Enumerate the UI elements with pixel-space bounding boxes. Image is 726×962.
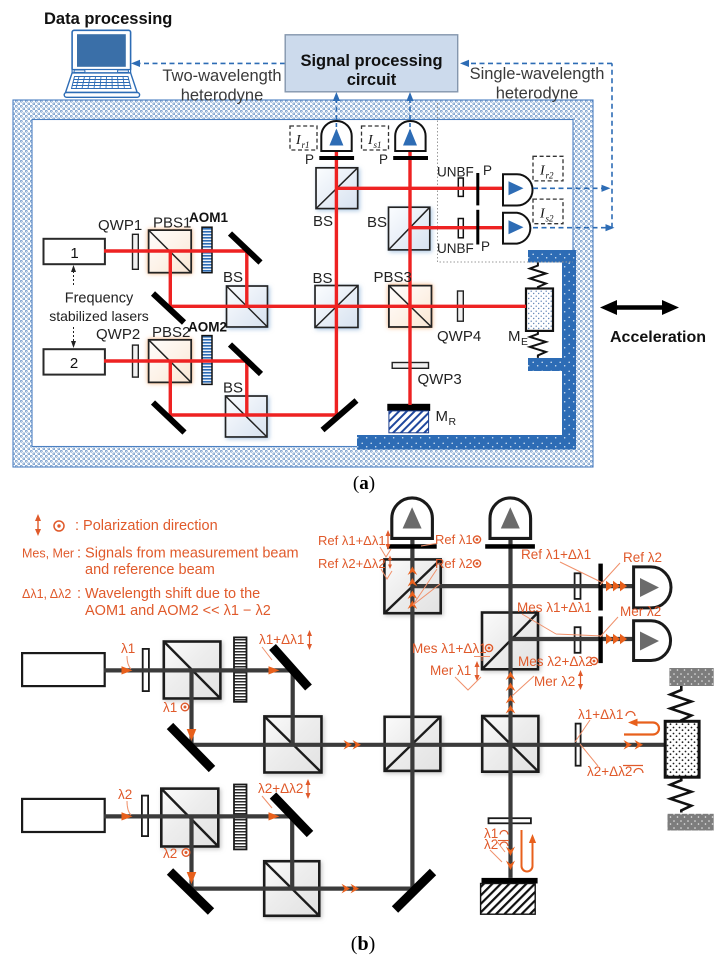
svg-text:λ1+Δλ1: λ1+Δλ1 (259, 632, 304, 647)
svg-text:Single-wavelength: Single-wavelength (470, 65, 605, 83)
svg-text:Mes λ1+Δλ1: Mes λ1+Δλ1 (517, 600, 592, 615)
svg-text:(a): (a) (353, 473, 375, 494)
svg-text:and reference beam: and reference beam (85, 562, 215, 578)
svg-text:PBS1: PBS1 (153, 215, 191, 232)
svg-text:λ2: λ2 (118, 787, 132, 802)
svg-text:Two-wavelength: Two-wavelength (162, 67, 281, 85)
svg-text:QWP2: QWP2 (96, 326, 140, 343)
svg-text:AOM1: AOM1 (189, 210, 228, 225)
svg-text:Ref λ2: Ref λ2 (435, 556, 473, 571)
svg-text:BS: BS (313, 270, 333, 287)
svg-text:: Signals from measurement bea: : Signals from measurement beam (77, 546, 299, 562)
svg-text:Ref λ1+Δλ1: Ref λ1+Δλ1 (521, 547, 591, 562)
svg-text:E: E (521, 336, 528, 348)
svg-text:λ2: λ2 (163, 846, 177, 861)
svg-text:λ1+Δλ1: λ1+Δλ1 (578, 707, 623, 722)
svg-text:circuit: circuit (347, 71, 397, 89)
svg-text:heterodyne: heterodyne (496, 85, 579, 103)
svg-text:λ2+Δλ2: λ2+Δλ2 (258, 781, 303, 796)
svg-text:Mer λ2: Mer λ2 (620, 604, 661, 619)
svg-text:1: 1 (70, 245, 78, 262)
svg-text:PBS3: PBS3 (374, 269, 412, 286)
svg-text:Frequency: Frequency (65, 291, 134, 307)
svg-text:Acceleration: Acceleration (610, 329, 706, 346)
svg-text:PBS2: PBS2 (152, 324, 190, 341)
svg-text:M: M (436, 408, 449, 425)
svg-text:P: P (305, 152, 314, 167)
svg-text:AOM2: AOM2 (188, 320, 227, 335)
svg-text:R: R (449, 416, 457, 428)
svg-text:: Wavelength shift due to the: : Wavelength shift due to the (77, 586, 260, 602)
svg-text:(b): (b) (351, 933, 375, 955)
svg-text:QWP4: QWP4 (437, 328, 481, 345)
svg-text:λ2: λ2 (484, 837, 498, 852)
svg-text:Mer λ2: Mer λ2 (534, 674, 575, 689)
svg-text:λ1: λ1 (121, 641, 135, 656)
svg-text:Ref λ1: Ref λ1 (435, 532, 473, 547)
svg-text:Mes, Mer: Mes, Mer (22, 547, 74, 561)
svg-text:BS: BS (313, 213, 333, 230)
svg-text:Δλ1, Δλ2: Δλ1, Δλ2 (22, 587, 71, 601)
svg-text:Mer λ1: Mer λ1 (430, 663, 471, 678)
svg-text:Data processing: Data processing (44, 10, 172, 28)
svg-text:M: M (508, 328, 521, 345)
svg-text:r2: r2 (546, 171, 555, 181)
svg-text:heterodyne: heterodyne (181, 87, 264, 105)
svg-text:QWP1: QWP1 (98, 217, 142, 234)
svg-text:s2: s2 (546, 213, 555, 223)
svg-text:s1: s1 (374, 140, 382, 150)
svg-text:r1: r1 (302, 140, 310, 150)
svg-text:BS: BS (367, 214, 387, 231)
svg-text:2: 2 (70, 355, 78, 372)
svg-text:UNBF: UNBF (437, 165, 474, 180)
svg-text:: Polarization direction: : Polarization direction (75, 518, 218, 534)
svg-text:P: P (379, 152, 388, 167)
svg-text:BS: BS (223, 269, 243, 286)
svg-text:P: P (483, 163, 492, 178)
svg-text:λ2+Δλ2: λ2+Δλ2 (587, 764, 632, 779)
svg-text:UNBF: UNBF (437, 241, 474, 256)
svg-text:stabilized lasers: stabilized lasers (49, 308, 149, 324)
svg-text:Ref λ1+Δλ1: Ref λ1+Δλ1 (318, 533, 386, 548)
svg-text:Mes λ1+Δλ1: Mes λ1+Δλ1 (412, 641, 487, 656)
svg-text:QWP3: QWP3 (418, 371, 462, 388)
svg-text:Ref λ2+Δλ2: Ref λ2+Δλ2 (318, 556, 386, 571)
svg-text:Mes λ2+Δλ2: Mes λ2+Δλ2 (518, 654, 593, 669)
svg-text:λ1: λ1 (163, 700, 177, 715)
svg-text:Ref λ2: Ref λ2 (623, 550, 662, 565)
svg-text:AOM1 and AOM2 << λ1 − λ2: AOM1 and AOM2 << λ1 − λ2 (85, 603, 271, 619)
svg-text:P: P (481, 239, 490, 254)
svg-text:Signal processing: Signal processing (300, 52, 442, 70)
svg-text:BS: BS (223, 380, 243, 397)
